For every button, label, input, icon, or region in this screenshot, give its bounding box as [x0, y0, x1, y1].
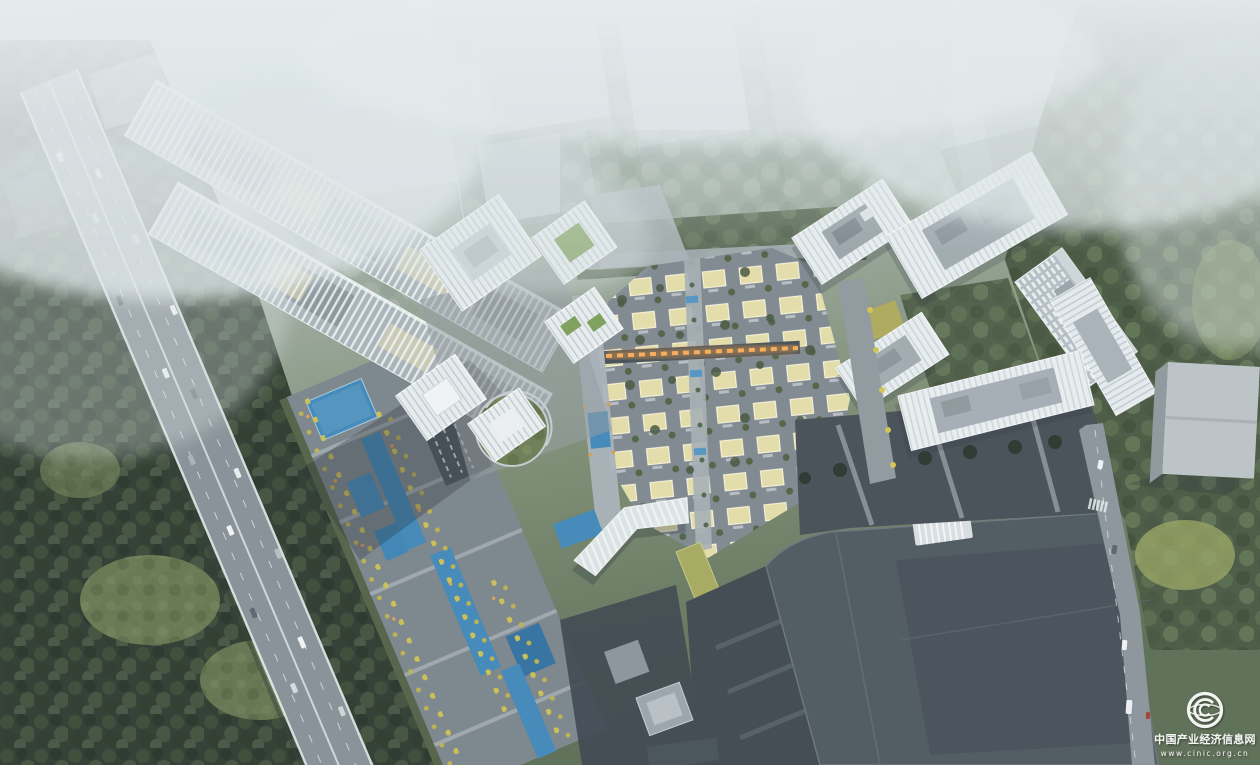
render-canvas: 中国产业经济信息网 www.cinic.org.cn [0, 0, 1260, 765]
watermark-site-name: 中国产业经济信息网 [1154, 732, 1256, 746]
watermark-site-url: www.cinic.org.cn [1161, 749, 1250, 758]
aerial-render-image: 中国产业经济信息网 www.cinic.org.cn [0, 0, 1260, 765]
fog-overlay [0, 0, 1260, 765]
